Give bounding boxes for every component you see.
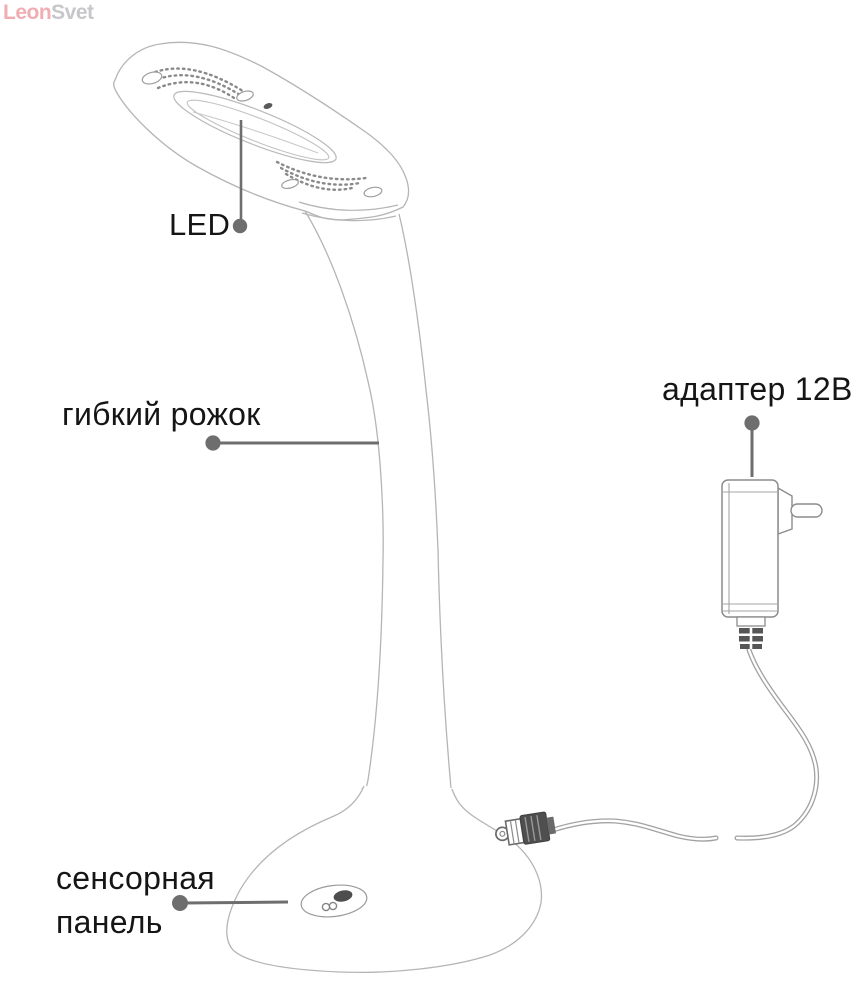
callout-flexible-arm: [205, 435, 379, 450]
power-adapter: [722, 480, 822, 649]
label-adapter: адаптер 12В: [662, 371, 853, 408]
lamp-diagram-art: [0, 0, 864, 1000]
diagram-page: LeonSvet LED гибкий рожок адаптер 12В се…: [0, 0, 864, 1000]
label-touch-panel-line2: панель: [56, 900, 215, 944]
plug-block: [778, 488, 792, 534]
label-led: LED: [169, 207, 230, 243]
callout-led-dot: [233, 219, 247, 233]
watermark-logo: LeonSvet: [3, 1, 94, 25]
callout-adapter: [744, 415, 759, 477]
power-cable: [553, 650, 817, 839]
label-touch-panel-line1: сенсорная: [56, 856, 215, 900]
label-touch-panel: сенсорная панель: [56, 856, 215, 944]
callout-adapter-dot: [744, 415, 759, 430]
lamp-neck: [305, 211, 452, 810]
watermark-part2: Svet: [51, 1, 93, 24]
lamp-base: [227, 786, 542, 972]
label-flexible-arm: гибкий рожок: [62, 396, 261, 433]
callout-flexible-arm-dot: [205, 435, 220, 450]
lamp-head: [114, 42, 409, 220]
watermark-part1: Leon: [3, 1, 51, 24]
callouts: [172, 120, 760, 911]
strain-relief: [737, 617, 765, 649]
plug-prong: [791, 504, 822, 517]
